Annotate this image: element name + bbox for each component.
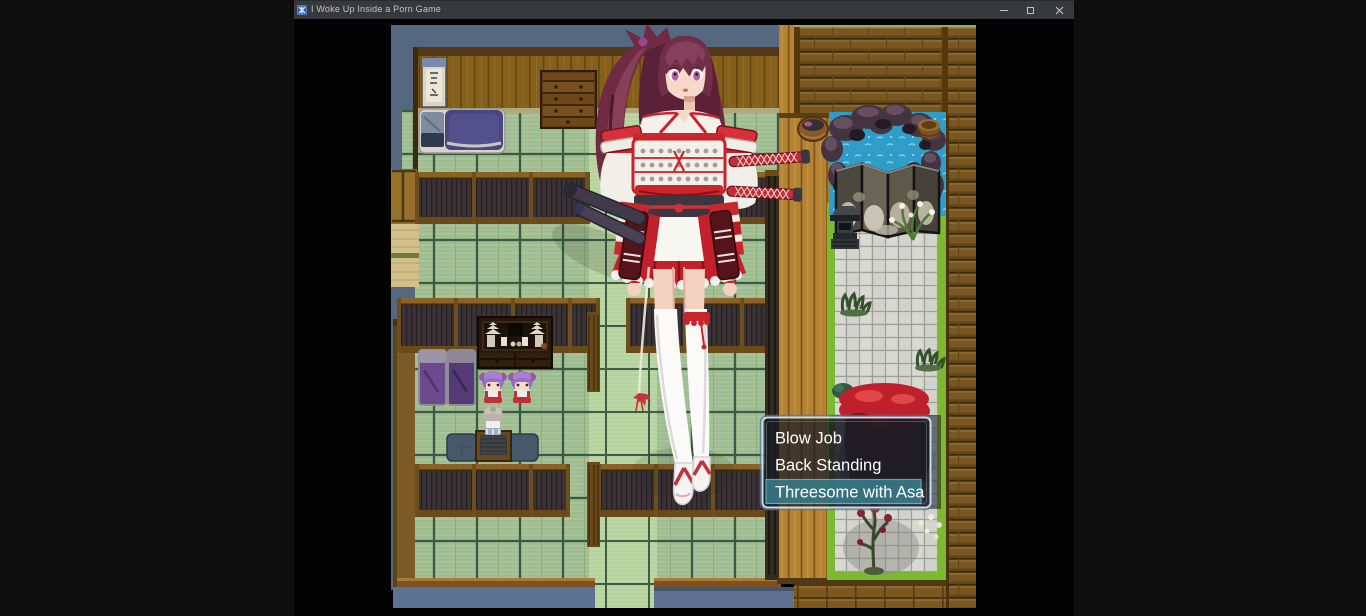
- svg-text:Blow Job: Blow Job: [775, 430, 842, 448]
- svg-text:Back Standing: Back Standing: [775, 457, 881, 475]
- svg-text:Threesome with Asa: Threesome with Asa: [775, 484, 925, 502]
